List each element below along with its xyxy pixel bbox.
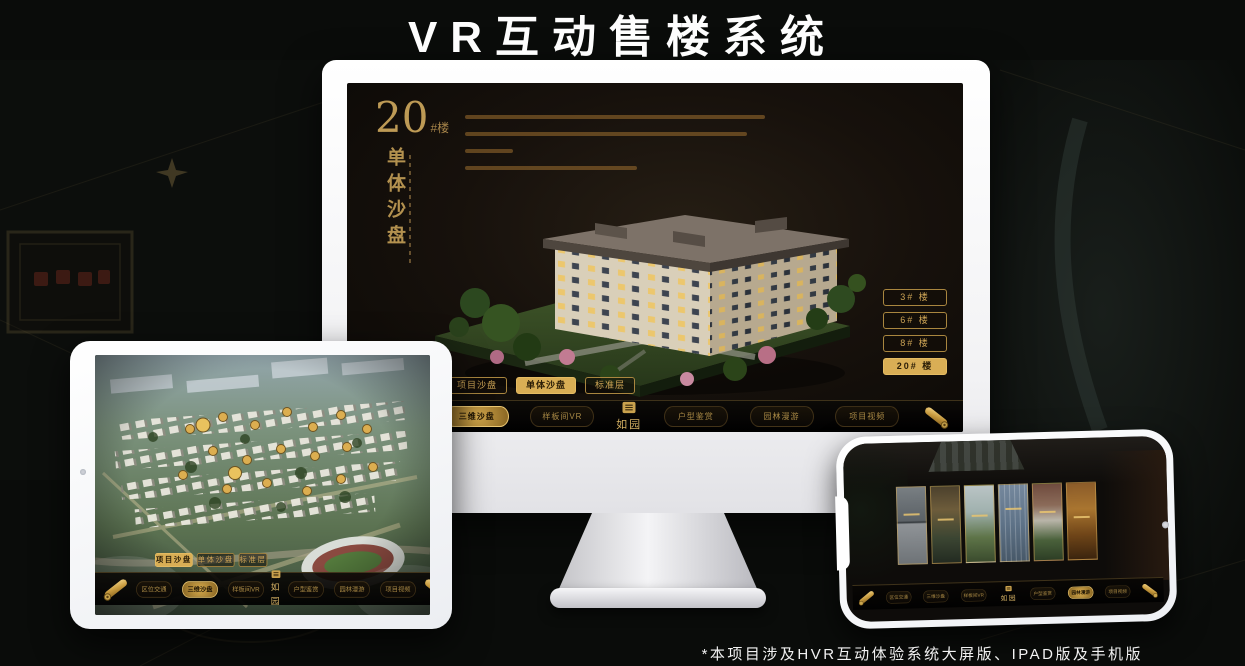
subtab-standard-floor[interactable]: 标准层 [585,377,635,394]
gallery-panel-6[interactable] [1066,482,1098,561]
tablet-scroll-handle-left[interactable] [101,576,131,602]
gallery-panel-2[interactable] [930,485,962,564]
phone-nav-3d-sandbox[interactable]: 三维沙盘 [923,589,949,602]
subtab-single-sandbox[interactable]: 单体沙盘 [516,377,576,394]
tablet-screen: 项目沙盘 单体沙盘 标准层 区位交通 三维沙盘 样板间VR 如园 户型鉴赏 园林… [95,355,430,615]
gallery-panel-4[interactable] [998,483,1030,562]
building-number: 20 [375,93,428,142]
tablet-nav-unit-gallery[interactable]: 户型鉴赏 [288,581,324,597]
footnote-text: *本项目涉及HVR互动体验系统大屏版、IPAD版及手机版 [702,643,1143,664]
tablet-subtab-single-sandbox[interactable]: 单体沙盘 [197,553,235,567]
project-logo: 如园 [616,401,642,433]
logo-seal-icon [621,401,637,414]
tablet-scroll-handle-right[interactable] [421,576,430,602]
phone-nav-unit-gallery[interactable]: 户型鉴赏 [1030,587,1056,600]
building-number-suffix: #楼 [430,121,449,135]
subtab-project-sandbox[interactable]: 项目沙盘 [447,377,507,394]
phone-screen: 区位交通 三维沙盘 样板间VR 如园 户型鉴赏 园林漫游 项目视频 [843,436,1171,622]
nav-item-unit-gallery[interactable]: 户型鉴赏 [664,406,728,427]
floor-button-3[interactable]: 3# 楼 [883,289,947,306]
tablet-navbar: 区位交通 三维沙盘 样板间VR 如园 户型鉴赏 园林漫游 项目视频 [95,572,430,605]
building-model-illustration [405,151,875,401]
tablet-nav-showroom-vr[interactable]: 样板间VR [228,581,264,597]
section-title-vertical: 单体沙盘 [381,147,408,277]
nav-item-3d-sandbox[interactable]: 三维沙盘 [445,406,509,427]
scroll-handle-icon[interactable] [921,404,951,430]
tablet-subtab-project-sandbox[interactable]: 项目沙盘 [155,553,193,567]
tablet-device: 项目沙盘 单体沙盘 标准层 区位交通 三维沙盘 样板间VR 如园 户型鉴赏 园林… [70,341,452,629]
floor-button-20[interactable]: 20# 楼 [883,358,947,375]
tablet-project-logo: 如园 [270,570,281,608]
tablet-nav-location[interactable]: 区位交通 [136,581,172,597]
floor-button-6[interactable]: 6# 楼 [883,312,947,329]
promo-composite: { "title": "VR互动售楼系统", "footnote": "*本项目… [0,0,1245,666]
nav-item-project-video[interactable]: 项目视频 [835,406,899,427]
phone-nav-project-video[interactable]: 项目视频 [1105,585,1131,598]
phone-notch [835,496,850,570]
nav-item-garden-roam[interactable]: 园林漫游 [750,406,814,427]
phone-logo-text: 如园 [1000,593,1016,601]
floor-button-group: 3# 楼 6# 楼 8# 楼 20# 楼 [883,289,947,375]
monitor-stand-neck [558,513,758,591]
phone-project-logo: 如园 [1000,585,1017,603]
phone-nav-location[interactable]: 区位交通 [885,590,911,603]
phone-nav-garden-roam[interactable]: 园林漫游 [1068,586,1094,599]
tablet-nav-3d-sandbox[interactable]: 三维沙盘 [182,581,218,597]
phone-nav-showroom-vr[interactable]: 样板间VR [961,588,987,601]
sandbox-subtabs: 项目沙盘 单体沙盘 标准层 [447,377,635,394]
gallery-panel-3[interactable] [964,484,996,563]
tablet-logo-seal-icon [270,570,281,579]
phone-scroll-handle-left[interactable] [857,588,877,607]
page-title: VR互动售楼系统 [0,1,1245,65]
background-plaque [8,232,132,332]
tablet-nav-garden-roam[interactable]: 园林漫游 [334,581,370,597]
phone-logo-seal-icon [1004,585,1012,591]
tablet-nav-project-video[interactable]: 项目视频 [380,581,416,597]
floor-button-8[interactable]: 8# 楼 [883,335,947,352]
tablet-logo-text: 如园 [271,582,281,607]
phone-scroll-handle-right[interactable] [1139,581,1159,600]
phone-scene-cabinet [1090,450,1169,582]
phone-scene-pergola [928,440,1025,473]
tablet-subtab-standard-floor[interactable]: 标准层 [239,553,268,567]
monitor-stand-base [550,588,766,608]
gallery-panel-1[interactable] [896,486,928,565]
nav-item-showroom-vr[interactable]: 样板间VR [530,406,594,427]
phone-gallery [896,482,1098,565]
logo-text: 如园 [616,418,642,431]
tablet-subtabs: 项目沙盘 单体沙盘 标准层 [155,553,267,567]
tablet-camera-dot [80,469,86,475]
gallery-panel-5[interactable] [1032,483,1064,562]
phone-device: 区位交通 三维沙盘 样板间VR 如园 户型鉴赏 园林漫游 项目视频 [836,429,1178,630]
